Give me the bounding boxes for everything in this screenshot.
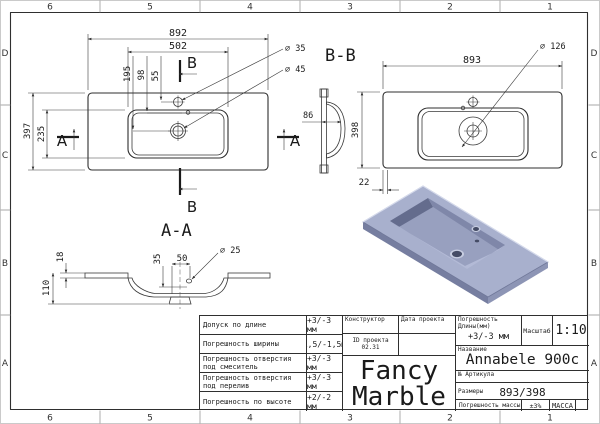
svg-text:35: 35: [153, 254, 163, 265]
mass-tolerance-value: ±3%: [522, 400, 550, 411]
section-bb-view: B-B 86 893: [302, 42, 566, 194]
svg-text:22: 22: [359, 178, 370, 188]
empty-cell: [399, 334, 456, 356]
zone-col-bottom-2: 2: [447, 414, 453, 424]
zone-row-right-d: D: [591, 49, 598, 59]
zone-col-top-3: 3: [347, 3, 353, 13]
mass-label: МАССА: [550, 400, 576, 411]
zone-row-right-a: A: [591, 359, 598, 369]
section-b-label-top: B: [187, 54, 197, 72]
svg-text:892: 892: [169, 28, 187, 39]
tolerance-value-3: +3/-3 мм: [307, 354, 343, 373]
zone-row-right-c: C: [591, 151, 597, 161]
drain-hole-plan: [168, 121, 188, 141]
overflow-hole-section: [186, 279, 191, 283]
render-3d: [363, 186, 548, 304]
length-tolerance-label: Погрешность Длины(мм): [456, 316, 521, 330]
tolerance-label-3: Погрешность отверстия под смеситель: [200, 354, 307, 373]
dim-50: 50: [172, 254, 190, 294]
dim-55: 55: [151, 71, 161, 82]
svg-text:86: 86: [303, 111, 313, 121]
project-id-line2: 02.31: [343, 344, 398, 351]
svg-text:398: 398: [351, 122, 361, 138]
drain-recess-bottom: [459, 117, 487, 145]
project-id-line1: ID проекта: [343, 334, 398, 344]
product-name-cell: Название Annabele 900c: [456, 346, 589, 371]
length-tolerance-value: +3/-3 мм: [456, 330, 521, 342]
svg-text:⌀ 25: ⌀ 25: [220, 246, 240, 256]
mass-tolerance-label: Погрешность массы: [456, 400, 522, 411]
section-b-label-bottom: B: [187, 198, 197, 216]
section-a-marks: A A: [57, 129, 301, 150]
mass-value-cell: [576, 400, 589, 411]
zone-row-right-b: B: [591, 259, 597, 269]
dim-22: 22: [359, 170, 399, 194]
render-drain-hole: [452, 251, 462, 257]
tolerance-label-2: Погрешность ширины: [200, 335, 307, 354]
svg-text:⌀ 35: ⌀ 35: [285, 44, 305, 54]
brand-cell: Fancy Marble: [343, 356, 456, 411]
zone-col-top-4: 4: [247, 3, 253, 13]
zone-row-left-d: D: [2, 49, 9, 59]
dim-235: 235: [37, 110, 125, 158]
size-label: Размеры: [456, 388, 483, 396]
title-block: Допуск по длине +3/-3 мм Погрешность шир…: [199, 315, 588, 410]
dim-195: 195: [123, 66, 133, 82]
size-cell: Размеры 893/398: [456, 383, 589, 400]
tolerance-label-4: Погрешность отверстия под перелив: [200, 373, 307, 392]
zone-col-top-6: 6: [47, 3, 53, 13]
brand-line1: Fancy: [343, 358, 455, 384]
constructor-cell: Конструктор: [343, 316, 399, 334]
zone-col-bottom-6: 6: [47, 414, 53, 424]
length-tolerance-cell: Погрешность Длины(мм) +3/-3 мм: [456, 316, 522, 346]
dim-893: 893: [383, 55, 562, 89]
dim-398: 398: [351, 92, 380, 168]
tolerance-value-4: +3/-3 мм: [307, 373, 343, 392]
drawing-sheet: 6 5 4 3 2 1 6 5 4 3 2 1 D C B A D C B A: [0, 0, 600, 424]
zone-col-bottom-5: 5: [147, 414, 153, 424]
brand-line2: Marble: [343, 384, 455, 410]
zone-col-bottom-3: 3: [347, 414, 353, 424]
zone-row-left-b: B: [2, 259, 8, 269]
dim-892: 892: [88, 28, 268, 90]
tolerance-value-2: +1,5/-1,5мм: [307, 335, 343, 354]
project-date-cell: Дата проекта: [399, 316, 456, 334]
plan-view: 892 502 195 98 55 397 235: [23, 28, 305, 216]
svg-text:110: 110: [42, 280, 52, 296]
section-a-label-left: A: [57, 132, 68, 150]
zone-col-top-1: 1: [547, 3, 553, 13]
article-cell: № Артикула: [456, 371, 589, 383]
zone-row-left-a: A: [2, 359, 9, 369]
project-id-cell: ID проекта 02.31: [343, 334, 399, 356]
zone-row-left-c: C: [2, 151, 8, 161]
svg-text:⌀ 126: ⌀ 126: [540, 42, 566, 52]
brand-logo: Fancy Marble: [343, 356, 455, 411]
section-b-marks: B B: [179, 54, 197, 216]
render-overflow-hole: [475, 240, 479, 243]
svg-text:893: 893: [463, 55, 481, 66]
svg-text:235: 235: [37, 126, 47, 142]
faucet-hole-plan: [172, 96, 185, 109]
svg-text:18: 18: [56, 252, 66, 263]
callout-drain-dia: ⌀ 45: [184, 65, 305, 128]
render-faucet-hole: [473, 227, 479, 231]
dim-397: 397: [23, 93, 85, 170]
svg-text:502: 502: [169, 41, 187, 52]
zone-col-top-5: 5: [147, 3, 153, 13]
svg-text:50: 50: [177, 254, 188, 264]
dim-98: 98: [137, 70, 147, 81]
tolerance-label-5: Погрешность по высоте: [200, 392, 307, 411]
dim-18: 18: [56, 252, 85, 288]
section-a-label-right: A: [290, 132, 301, 150]
callout-overflow-dia: ⌀ 25: [192, 246, 240, 279]
tolerance-label-1: Допуск по длине: [200, 316, 307, 335]
overflow-mark-plan: [186, 111, 190, 115]
section-aa-view: A-A 18 110 35: [42, 221, 270, 309]
scale-value-cell: 1:10: [553, 316, 589, 346]
aa-cut-profile: [85, 262, 270, 309]
zone-col-top-2: 2: [447, 3, 453, 13]
bb-cut-profile: [320, 89, 345, 173]
section-aa-title: A-A: [161, 221, 192, 241]
section-bb-title: B-B: [325, 46, 356, 66]
scale-label-cell: Масштаб: [522, 316, 553, 346]
faucet-hole-bottom: [467, 96, 480, 109]
zone-col-bottom-1: 1: [547, 414, 553, 424]
tolerance-value-5: +2/-2 мм: [307, 392, 343, 411]
product-name-value: Annabele 900c: [456, 352, 589, 368]
svg-text:⌀ 45: ⌀ 45: [285, 65, 305, 75]
zone-col-bottom-4: 4: [247, 414, 253, 424]
tolerance-value-1: +3/-3 мм: [307, 316, 343, 335]
svg-text:397: 397: [23, 123, 33, 139]
